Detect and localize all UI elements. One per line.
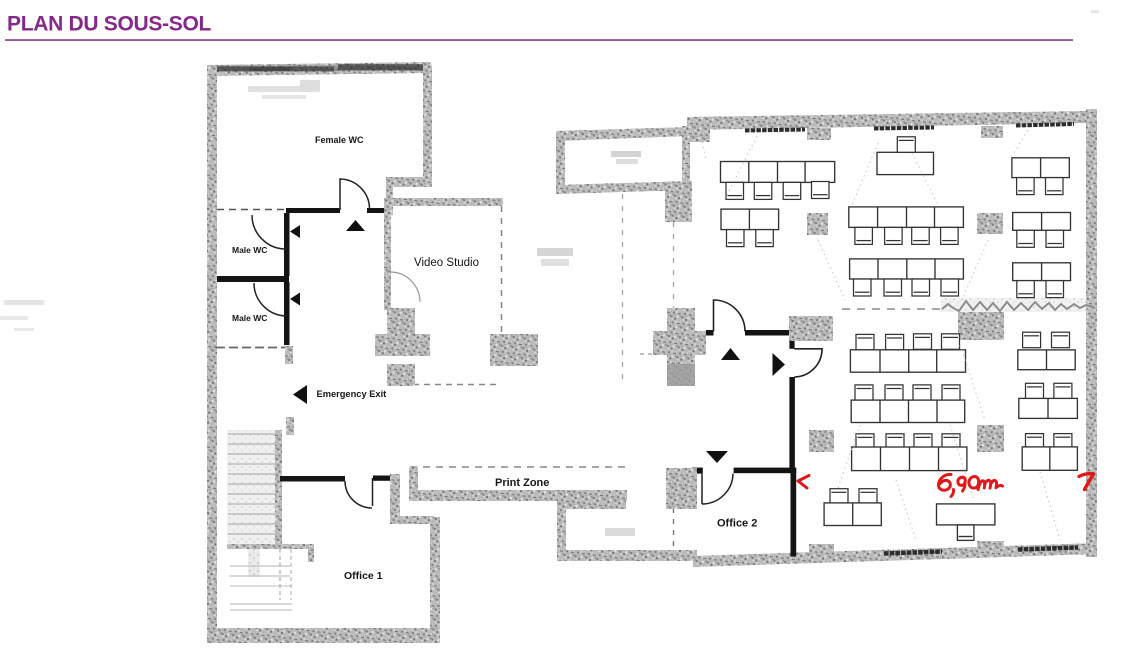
- svg-text:PLAN DU SOUS-SOL: PLAN DU SOUS-SOL: [7, 13, 212, 36]
- svg-text:Video Studio: Video Studio: [414, 257, 479, 269]
- svg-text:Office 1: Office 1: [344, 570, 383, 582]
- svg-text:Office 2: Office 2: [717, 518, 757, 530]
- svg-text:Male WC: Male WC: [232, 313, 267, 323]
- svg-text:Print Zone: Print Zone: [495, 477, 549, 489]
- svg-text:Male WC: Male WC: [232, 245, 267, 255]
- svg-text:Female WC: Female WC: [315, 135, 364, 145]
- svg-text:Emergency Exit: Emergency Exit: [317, 389, 387, 399]
